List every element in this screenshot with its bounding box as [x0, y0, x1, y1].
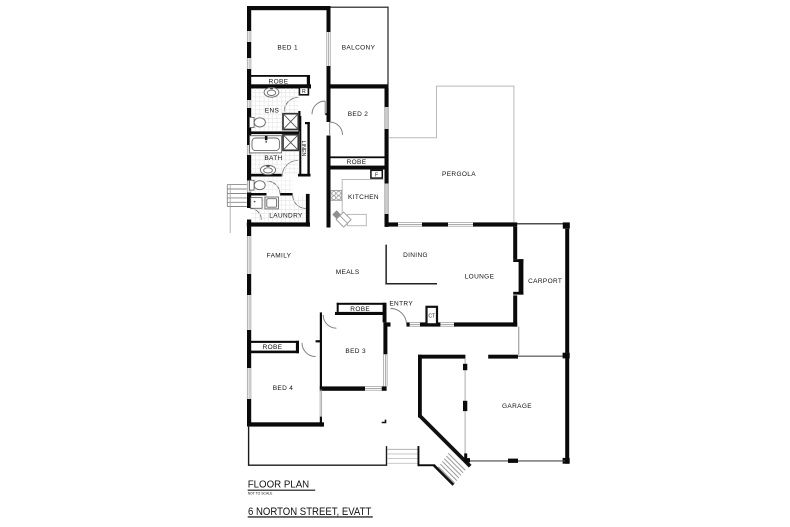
svg-text:ENTRY: ENTRY: [389, 301, 413, 308]
svg-text:ROBE: ROBE: [269, 79, 289, 86]
svg-text:DINING: DINING: [403, 252, 428, 259]
svg-text:LOUNGE: LOUNGE: [465, 273, 495, 280]
svg-text:CT: CT: [428, 314, 435, 320]
svg-text:BED 2: BED 2: [348, 111, 369, 118]
svg-text:BED 4: BED 4: [273, 385, 294, 392]
svg-text:PERGOLA: PERGOLA: [442, 171, 476, 178]
svg-text:KITCHEN: KITCHEN: [348, 194, 379, 201]
svg-text:CARPORT: CARPORT: [528, 278, 562, 285]
svg-text:BATH: BATH: [264, 155, 282, 162]
svg-text:BED 3: BED 3: [345, 348, 366, 355]
svg-text:R: R: [302, 89, 306, 95]
svg-text:F: F: [375, 173, 378, 179]
svg-text:LAUNDRY: LAUNDRY: [269, 212, 303, 219]
svg-text:FLOOR PLAN: FLOOR PLAN: [248, 480, 310, 491]
svg-text:GARAGE: GARAGE: [502, 403, 532, 410]
svg-text:ROBE: ROBE: [350, 306, 370, 313]
svg-text:BALCONY: BALCONY: [342, 45, 376, 52]
svg-text:MEALS: MEALS: [336, 269, 360, 276]
svg-text:FAMILY: FAMILY: [267, 253, 292, 260]
svg-text:BED 1: BED 1: [277, 45, 298, 52]
svg-text:ROBE: ROBE: [347, 159, 367, 166]
svg-text:ENS: ENS: [265, 108, 280, 115]
svg-text:ROBE: ROBE: [263, 344, 283, 351]
svg-text:LINEN: LINEN: [300, 141, 306, 157]
svg-text:NOT TO SCALE: NOT TO SCALE: [248, 491, 273, 495]
